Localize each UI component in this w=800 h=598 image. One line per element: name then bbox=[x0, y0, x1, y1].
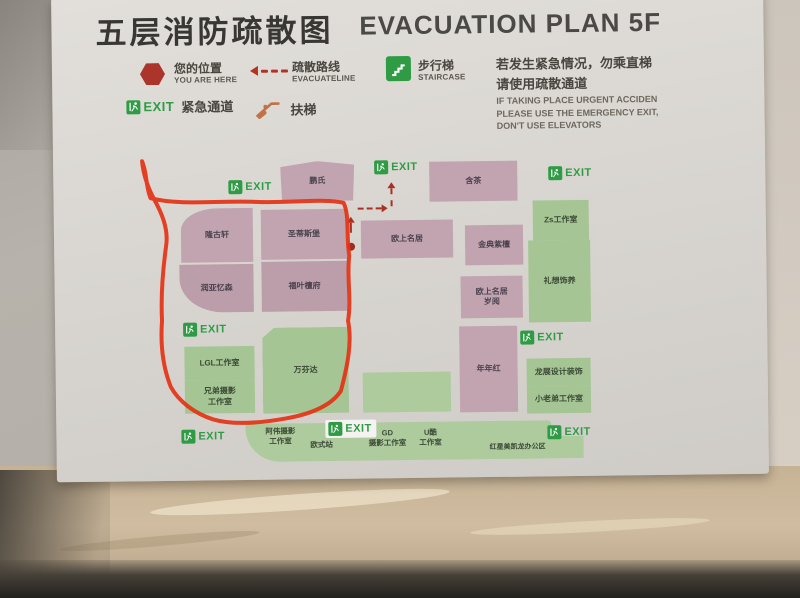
floor-dark-band bbox=[0, 560, 800, 598]
exit-sign: EXIT bbox=[325, 419, 377, 438]
map-room: 隆古轩 bbox=[181, 208, 254, 263]
map-room: 万芬达 bbox=[262, 327, 349, 414]
exit-sign: EXIT bbox=[520, 330, 564, 345]
evacuate-line-icon bbox=[250, 65, 288, 75]
map-room: 礼想饰养 bbox=[528, 240, 591, 323]
map-room: 欧上名居 岁阅 bbox=[460, 276, 523, 319]
map-room: Zs工作室 bbox=[533, 200, 589, 241]
map-room-label: 阿伟摄影 工作室 bbox=[254, 426, 306, 446]
exit-sign: EXIT bbox=[228, 180, 272, 195]
map-room: 福叶檀府 bbox=[261, 261, 348, 312]
map-room-label: U酷 工作室 bbox=[411, 428, 449, 448]
page-title-cn: 五层消防疏散图 bbox=[95, 5, 334, 53]
map-room-unlabeled bbox=[363, 372, 451, 413]
map-corridor-band: 红星美凯龙办公区 bbox=[451, 436, 583, 460]
map-room: 年年红 bbox=[459, 326, 518, 413]
evacuation-sign-board: 五层消防疏散图 EVACUATION PLAN 5F 您的位置 YOU ARE … bbox=[51, 0, 769, 482]
evacuate-arrow-small-icon bbox=[347, 217, 355, 233]
legend-you-are-here-en: YOU ARE HERE bbox=[174, 75, 237, 85]
map-room: 润亚忆森 bbox=[179, 264, 254, 313]
photo-of-evacuation-sign: 五层消防疏散图 EVACUATION PLAN 5F 您的位置 YOU ARE … bbox=[0, 0, 800, 598]
exit-running-man-icon bbox=[548, 166, 562, 180]
map-room: 龙展设计装饰 bbox=[527, 358, 591, 387]
legend-staircase-cn: 步行梯 bbox=[418, 56, 454, 73]
map-room: 金典紫檀 bbox=[465, 225, 523, 266]
escalator-icon bbox=[254, 98, 282, 125]
evacuate-arrow-right-icon bbox=[358, 204, 388, 212]
map-room: 兄弟摄影 工作室 bbox=[185, 380, 255, 414]
evacuate-arrow-up-icon bbox=[387, 182, 395, 206]
legend-staircase-en: STAIRCASE bbox=[418, 72, 466, 82]
page-title-en: EVACUATION PLAN 5F bbox=[359, 7, 661, 42]
exit-sign: EXIT bbox=[181, 429, 225, 444]
legend-exit-word: EXIT bbox=[143, 99, 174, 114]
legend-escalator-cn: 扶梯 bbox=[290, 99, 316, 118]
exit-running-man-icon bbox=[374, 160, 388, 174]
you-are-here-icon bbox=[140, 63, 165, 85]
map-room: 鹏氏 bbox=[280, 161, 354, 202]
legend-evacuate-line-cn: 疏散路线 bbox=[292, 58, 340, 76]
exit-sign: EXIT bbox=[374, 160, 418, 175]
legend-evacuate-line-en: EVACUATELINE bbox=[292, 74, 356, 84]
marble-streak bbox=[150, 484, 450, 521]
exit-sign: EXIT bbox=[183, 322, 227, 337]
map-room: LGL工作室 bbox=[184, 346, 254, 381]
map-room: 含茶 bbox=[429, 161, 517, 202]
you-are-here-marker bbox=[347, 243, 355, 251]
marble-streak bbox=[470, 515, 710, 539]
staircase-icon bbox=[386, 56, 411, 81]
legend-exit-sign: EXIT 紧急通道 bbox=[126, 96, 233, 116]
map-room: 圣蒂斯堡 bbox=[261, 209, 348, 260]
map-room-label: 欧式站 bbox=[303, 440, 339, 450]
map-room: 欧上名居 bbox=[361, 219, 453, 258]
map-room: 小老弟工作室 bbox=[527, 386, 591, 414]
legend-you-are-here-cn: 您的位置 bbox=[174, 59, 222, 77]
exit-sign: EXIT bbox=[547, 425, 591, 440]
exit-running-man-icon bbox=[126, 100, 140, 114]
exit-sign: EXIT bbox=[548, 166, 592, 181]
exit-running-man-icon bbox=[228, 180, 242, 194]
notice-english: IF TAKING PLACE URGENT ACCIDEN PLEASE US… bbox=[496, 93, 658, 133]
legend-emergency-cn: 紧急通道 bbox=[181, 96, 233, 116]
exit-running-man-icon bbox=[183, 323, 197, 337]
exit-running-man-icon bbox=[547, 425, 561, 439]
exit-running-man-icon bbox=[520, 330, 534, 344]
exit-running-man-icon bbox=[181, 430, 195, 444]
exit-running-man-icon bbox=[328, 422, 342, 436]
notice-chinese: 若发生紧急情况，勿乘直梯 请使用疏散通道 bbox=[496, 53, 652, 95]
